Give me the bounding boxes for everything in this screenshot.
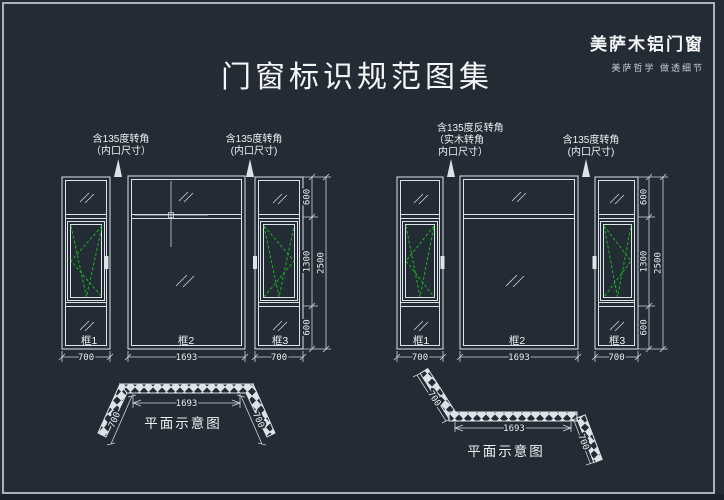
plan-dim-mid: 1693 [503,424,525,434]
glass-mark-icon [414,194,428,204]
frame1-tag: 框1 [81,334,97,347]
plan-band [449,412,577,421]
dim-height-top: 600 [640,189,650,205]
left-height-dimensions: 600 1300 600 2500 [303,174,332,352]
frame3-tag: 框3 [609,334,625,347]
left-elevation-panel-3: 框3 [253,177,303,349]
frame2-tag: 框2 [509,334,525,347]
tilt-symbol [71,226,102,297]
window-handle-icon [253,256,257,269]
window-handle-icon [593,256,597,269]
dim-width-frame1: 700 [412,353,428,363]
right-elevation-panel-2: 框2 [460,176,578,349]
glass-mark-icon [176,275,194,287]
frame2-tag: 框2 [178,334,194,347]
dim-height-total: 2500 [317,252,327,274]
tilt-symbol [264,226,294,297]
left-elevation-panel-1: 框1 [62,177,110,349]
plan-leg-left [98,384,127,437]
drawing-canvas: 含135度转角 （内口尺寸） 含135度转角 (内口尺寸) [0,0,724,500]
glass-mark-icon [273,194,287,204]
dim-height-mid: 1300 [303,251,313,273]
glass-mark-icon [610,194,624,204]
left-plan-view: 1693 700 700 平面示意图 [98,384,275,445]
dim-height-bottom: 600 [640,319,650,335]
dim-width-frame1: 700 [78,353,94,363]
right-label-corner-b-line1: 含135度转角 [563,133,620,146]
right-label-corner-a-line2: （实木转角 [434,133,484,146]
right-label-corner-a-line1: 含135度反转角 [437,121,504,134]
plan-band [120,384,253,393]
cad-sheet: 门窗标识规范图集 美萨木铝门窗 美萨哲学 做透细节 含135度转角 （内口尺寸）… [0,0,724,500]
right-plan-view: 1693 700 700 平面示意图 [413,369,602,465]
turn-symbol [264,226,294,297]
tilt-symbol [406,226,434,297]
window-handle-icon [441,256,445,269]
glass-mark-icon [506,275,524,287]
dim-height-bottom: 600 [303,319,313,335]
dim-height-total: 2500 [654,252,664,274]
turn-symbol [71,226,102,297]
window-handle-icon [105,256,109,269]
frame1-tag: 框1 [413,334,429,347]
dim-width-frame2: 1693 [176,353,198,363]
left-label-corner-a-line2: （内口尺寸） [91,144,151,157]
plan-caption: 平面示意图 [467,443,545,459]
tilt-symbol [604,226,631,297]
leader-spike-icon [447,159,455,177]
plan-caption: 平面示意图 [144,415,222,431]
leader-spike-icon [582,159,590,177]
glass-mark-icon [80,321,94,331]
left-label-corner-a-line1: 含135度转角 [93,132,150,145]
dim-height-mid: 1300 [640,251,650,273]
turn-symbol [406,226,434,297]
left-drawing: 含135度转角 （内口尺寸） 含135度转角 (内口尺寸) [59,132,331,445]
glass-mark-icon [414,321,428,331]
turn-symbol [604,226,631,297]
glass-mark-icon [179,192,193,202]
right-label-corner-a-line3: 内口尺寸） [438,145,488,158]
right-elevation-panel-1: 框1 [397,177,445,349]
frame3-tag: 框3 [272,334,288,347]
leader-spike-icon [246,159,254,177]
dim-width-frame3: 700 [608,353,624,363]
dim-width-frame2: 1693 [508,353,530,363]
glass-mark-icon [512,192,526,202]
plan-leg-right [246,384,275,437]
dim-width-frame3: 700 [271,353,287,363]
right-elevation-panel-3: 框3 [593,177,639,349]
left-width-dimensions: 700 1693 700 [59,351,306,363]
dim-height-top: 600 [303,189,313,205]
glass-mark-icon [80,193,94,203]
left-label-corner-b-line1: 含135度转角 [226,132,283,145]
plan-dim-mid: 1693 [176,399,198,409]
right-label-corner-b-line2: (内口尺寸) [568,145,615,158]
right-height-dimensions: 600 1300 600 2500 [638,174,668,352]
glass-mark-icon [610,321,624,331]
right-drawing: 含135度反转角 （实木转角 内口尺寸） 含135度转角 (内口尺寸) [394,121,668,465]
left-elevation-panel-2: 框2 [128,176,245,349]
right-width-dimensions: 700 1693 700 [394,351,641,363]
glass-mark-icon [273,321,287,331]
leader-spike-icon [114,159,122,177]
left-label-corner-b-line2: (内口尺寸) [231,144,278,157]
